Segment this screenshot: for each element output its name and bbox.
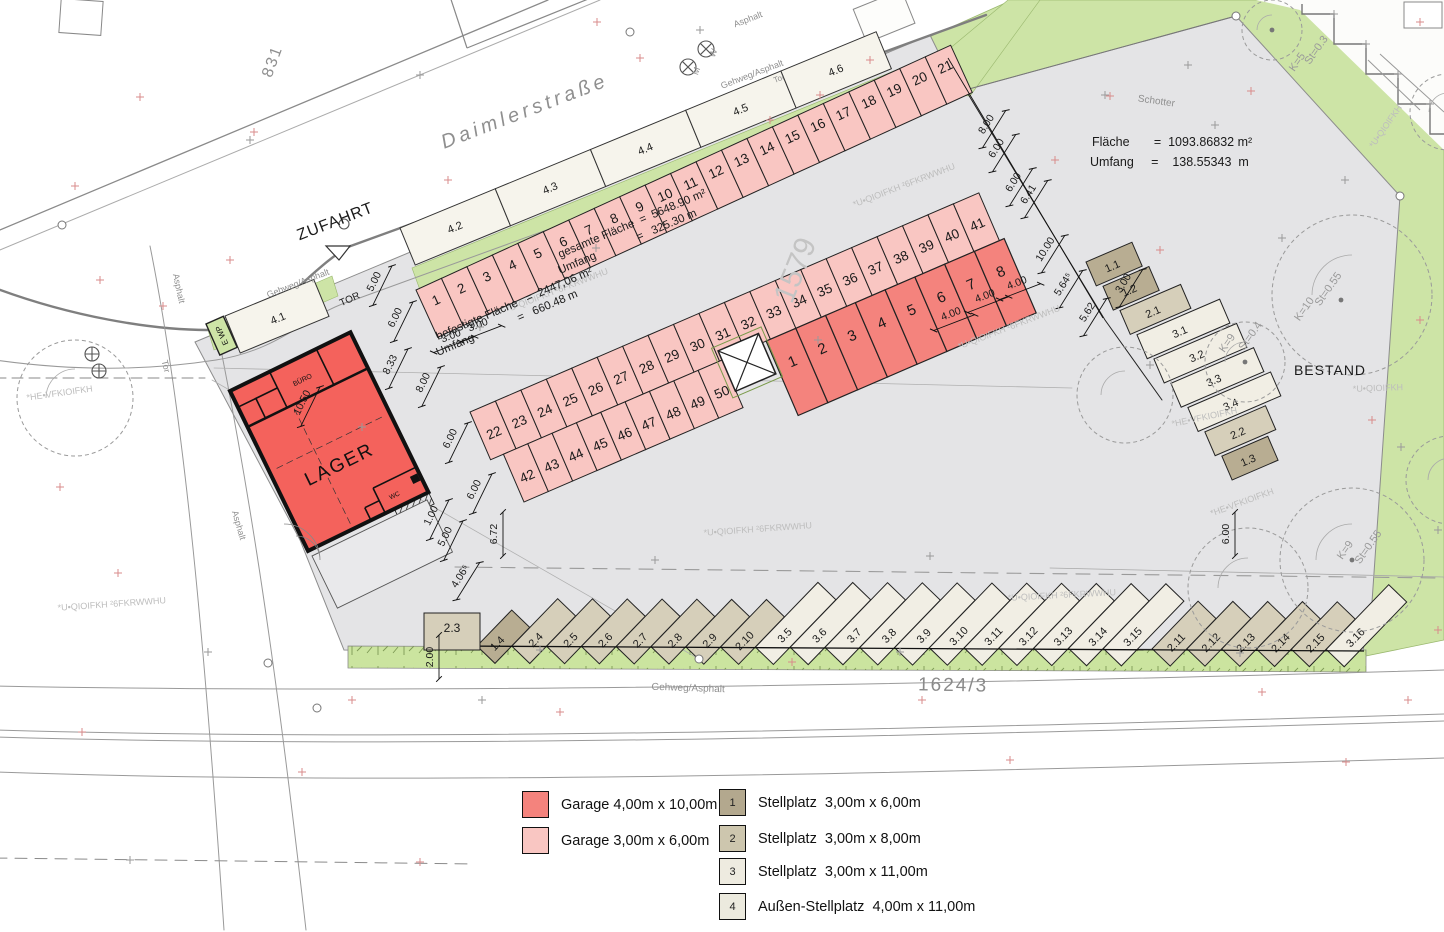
tree-trunk-dot [1270, 28, 1275, 33]
neighbor-building-street [853, 0, 915, 43]
street-name: Daimlerstraße [438, 69, 612, 153]
dimension-label: 6.00 [1220, 524, 1232, 545]
survey-cross-red [71, 182, 79, 190]
map-label: Asphalt [732, 9, 764, 29]
survey-cross-red [918, 696, 926, 704]
survey-cross-red [444, 176, 452, 184]
bestand-label: BESTAND [1294, 362, 1366, 378]
map-label: Tor [160, 359, 173, 374]
survey-cross-red [56, 483, 64, 491]
parcel-number-831: 831 [259, 43, 286, 80]
survey-cross-red [1342, 758, 1350, 766]
survey-cross-red [114, 569, 122, 577]
schotter-area-line1: Fläche = 1093.86832 m² [1092, 135, 1252, 149]
survey-cross-gray [246, 136, 254, 144]
stall-2-3: 2.3 [424, 613, 480, 650]
survey-cross-gray [204, 648, 212, 656]
map-label: Asphalt [171, 273, 187, 305]
neighbor-building-topcenter [438, 0, 660, 48]
dimension-label: 6.72 [488, 524, 500, 545]
neighbor-building-topright [1404, 2, 1442, 28]
survey-cross-red [136, 93, 144, 101]
survey-cross-red [348, 696, 356, 704]
schotter-area-line2: Umfang = 138.55343 m [1090, 155, 1249, 169]
survey-cross-red [1006, 756, 1014, 764]
zufahrt-arrow-icon [326, 246, 350, 260]
survey-cross-red [226, 256, 234, 264]
tree-trunk-dot [1243, 360, 1248, 365]
survey-cross-red [250, 128, 258, 136]
survey-cross-red [593, 18, 601, 26]
dimension-label: 2.00 [424, 647, 436, 668]
map-label: Asphalt [230, 509, 248, 541]
survey-code-label: *U•QIOIFKH ²6FKRWWHU [57, 595, 166, 613]
parcel-number-1624-3: 1624/3 [918, 674, 988, 696]
survey-code-label: *HE•VFKIOIFKH [26, 383, 93, 402]
survey-cross-red [1404, 696, 1412, 704]
map-label: W [707, 47, 719, 59]
zufahrt-label: ZUFAHRT [295, 199, 376, 244]
map-label: M [690, 66, 702, 76]
survey-cross-red [636, 54, 644, 62]
neighbor-building-topleft [59, 0, 103, 35]
tree-trunk-dot [1339, 298, 1344, 303]
survey-cross-gray [696, 26, 704, 34]
site-plan-stage: 4.24.34.44.54.6 4.1 12345678910111213141… [0, 0, 1444, 932]
survey-cross-gray [126, 856, 134, 864]
survey-cross-red [298, 768, 306, 776]
site-plan-drawing: 4.24.34.44.54.6 4.1 12345678910111213141… [0, 0, 1444, 932]
survey-cross-red [416, 858, 424, 866]
survey-code-label: *U•QIOIFKH [1353, 382, 1403, 394]
survey-cross-red [1258, 688, 1266, 696]
survey-cross-red [556, 708, 564, 716]
survey-cross-gray [478, 696, 486, 704]
map-label: Gehweg/Asphalt [651, 682, 725, 696]
survey-cross-gray [416, 71, 424, 79]
stall-label: 2.3 [444, 621, 461, 635]
survey-cross-red [78, 728, 86, 736]
survey-cross-red [96, 276, 104, 284]
